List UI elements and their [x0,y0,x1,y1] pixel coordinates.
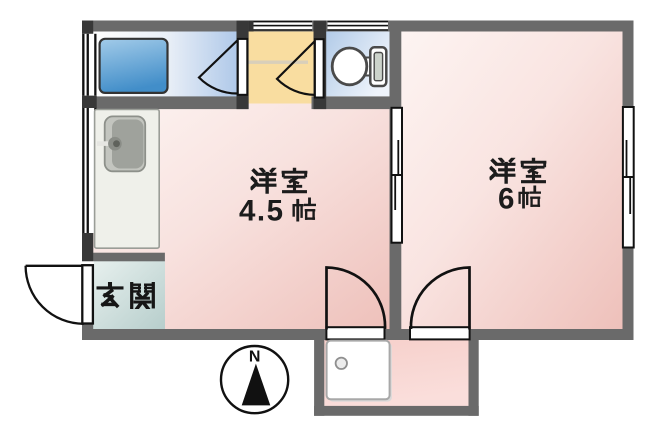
svg-text:6: 6 [498,183,514,216]
svg-text:4.5: 4.5 [239,195,285,228]
svg-text:N: N [249,349,261,366]
